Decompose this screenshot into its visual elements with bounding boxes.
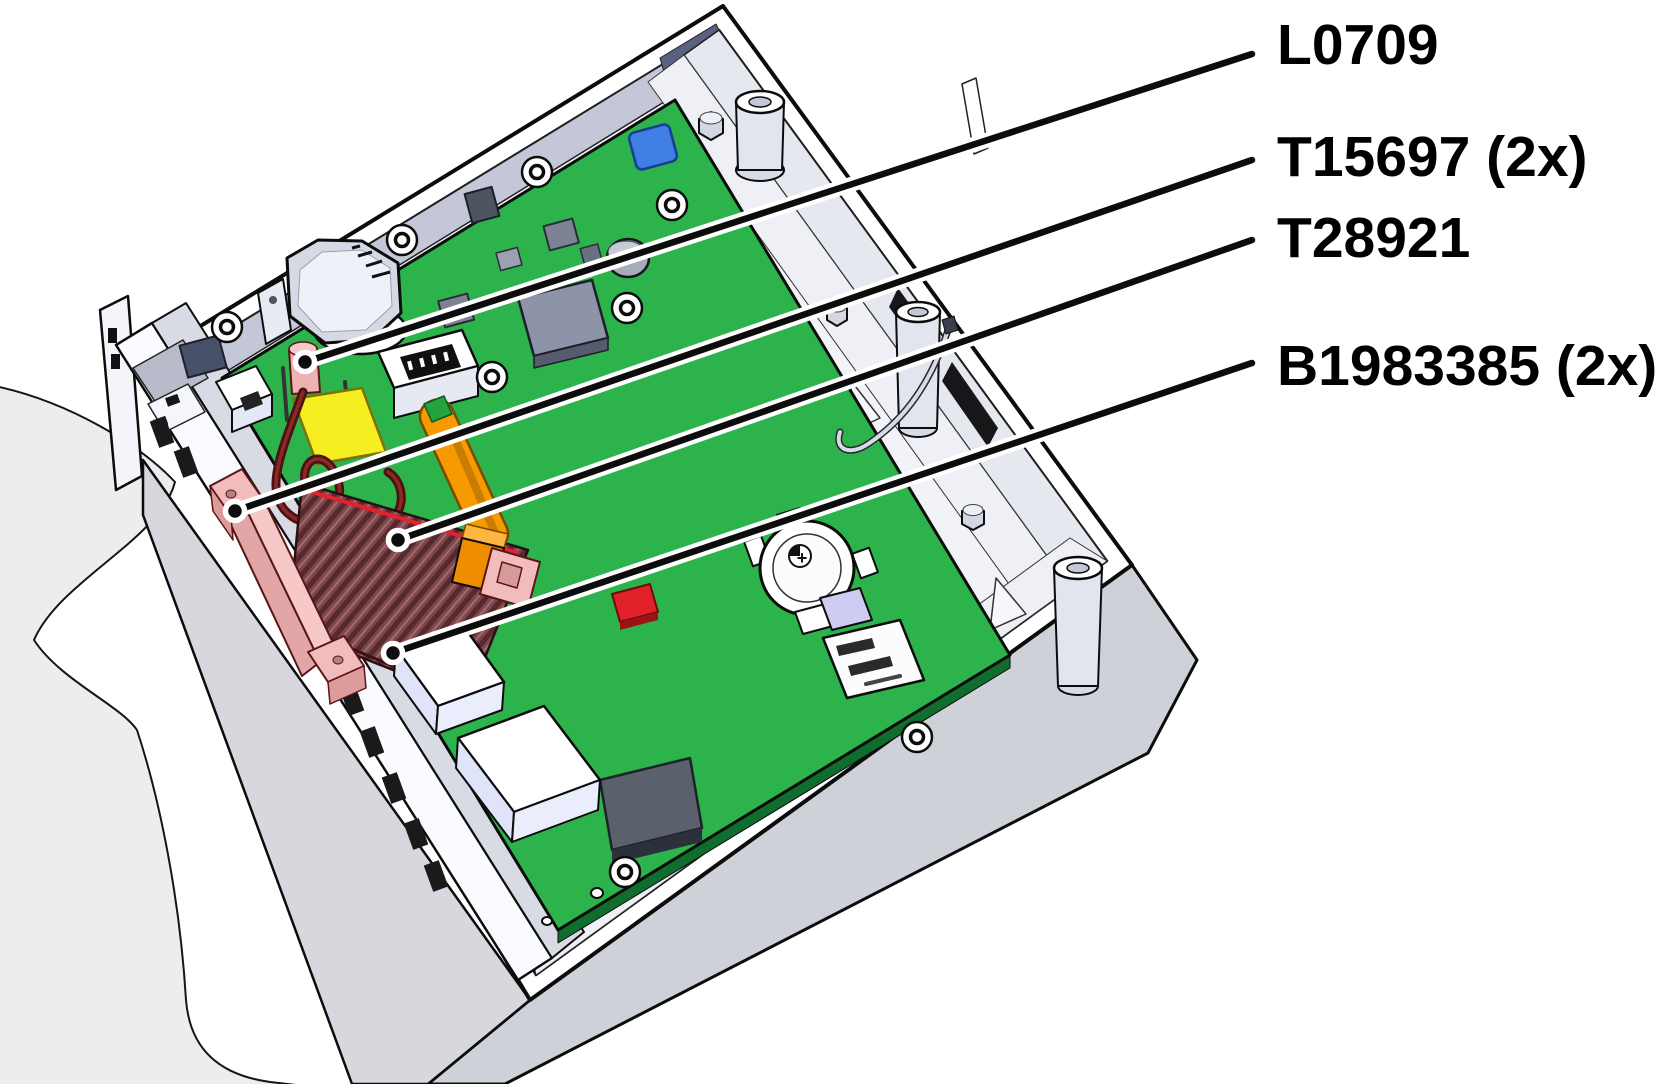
pink-end-block-hole	[333, 656, 343, 664]
pink-end-block-hole	[226, 490, 236, 498]
callout-dot-T28921	[389, 531, 408, 550]
callout-label-B1983385: B1983385 (2x)	[1277, 334, 1657, 398]
screw	[477, 362, 507, 392]
parts-diagram-canvas: +	[0, 0, 1659, 1084]
standoff	[736, 91, 784, 181]
callout-dot-T15697	[226, 502, 245, 521]
board-hole	[591, 888, 603, 898]
metal-tab-hole	[269, 296, 277, 304]
panel-slot	[108, 328, 117, 343]
standoff	[1054, 557, 1102, 695]
screw	[387, 225, 417, 255]
screw	[610, 857, 640, 887]
board-hole	[542, 917, 552, 925]
buzzer-mark	[352, 246, 360, 248]
screw	[612, 293, 642, 323]
callout-dot-L0709	[296, 353, 315, 372]
screw	[522, 157, 552, 187]
callout-label-T28921: T28921	[1277, 206, 1470, 270]
battery-cell-inner	[773, 534, 841, 602]
battery-polarity-mark: +	[797, 548, 808, 568]
screw	[657, 190, 687, 220]
screw	[902, 722, 932, 752]
callout-dot-B1983385	[384, 644, 403, 663]
callout-label-T15697: T15697 (2x)	[1277, 125, 1588, 189]
hex-nut	[962, 505, 984, 531]
hex-nut	[699, 112, 723, 140]
screw	[212, 312, 242, 342]
panel-slot	[111, 354, 120, 369]
callout-label-L0709: L0709	[1277, 13, 1439, 77]
